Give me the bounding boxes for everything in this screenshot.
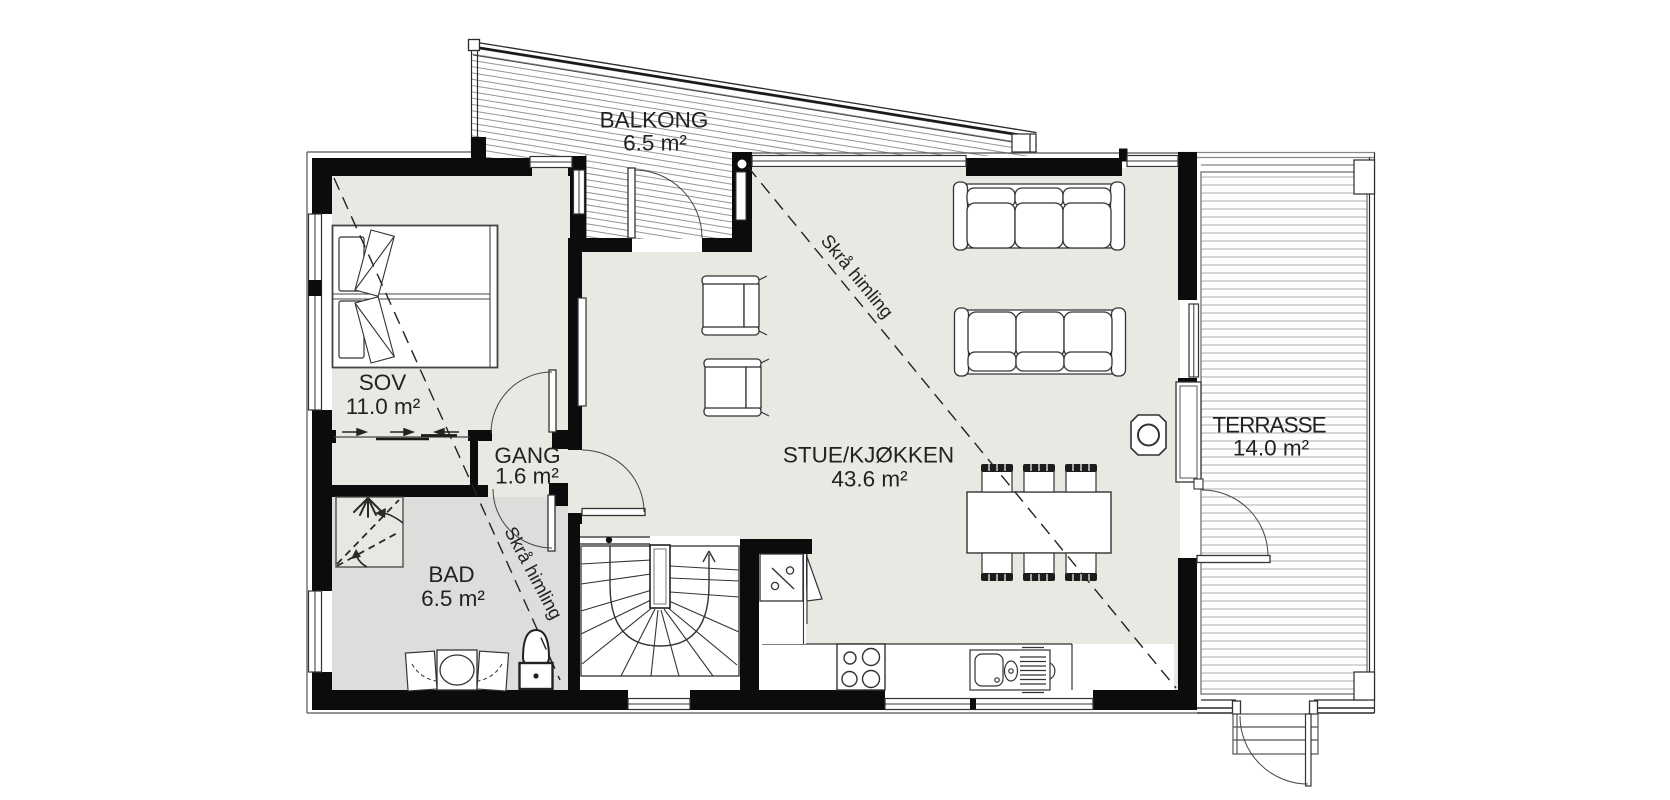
svg-text:6.5 m²: 6.5 m² (623, 131, 687, 156)
svg-text:11.0 m²: 11.0 m² (346, 394, 421, 419)
svg-text:BAD: BAD (428, 562, 474, 587)
svg-text:6.5 m²: 6.5 m² (421, 586, 485, 611)
svg-text:TERRASSE: TERRASSE (1212, 413, 1326, 438)
svg-text:43.6 m²: 43.6 m² (831, 467, 908, 492)
svg-text:SOV: SOV (359, 370, 407, 395)
svg-text:STUE/KJØKKEN: STUE/KJØKKEN (783, 443, 954, 468)
svg-text:1.6 m²: 1.6 m² (495, 464, 559, 489)
svg-text:14.0 m²: 14.0 m² (1233, 436, 1310, 461)
svg-text:BALKONG: BALKONG (600, 108, 709, 133)
